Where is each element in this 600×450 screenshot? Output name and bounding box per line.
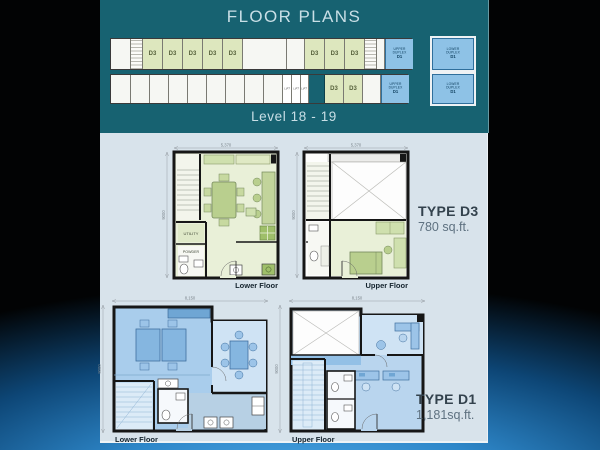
- floor-label: Lower Floor: [115, 435, 158, 444]
- sink-icon: [344, 375, 352, 381]
- dimension-width: 8,150: [289, 296, 425, 303]
- strip-unit-d3: D3: [344, 75, 363, 103]
- plan-d3-upper-floor: 5,370 9000: [292, 142, 412, 290]
- slide-background: FLOOR PLANS D3 D3 D3 D3 D3 D3 D3 D3: [0, 0, 600, 450]
- strip-unit-upper-duplex-d1: UPPERDUPLEXD1: [381, 75, 409, 103]
- strip-unit: [287, 39, 305, 69]
- sink-icon: [179, 256, 188, 262]
- strip-unit: [131, 75, 150, 103]
- strip-unit: [111, 39, 131, 69]
- toilet-icon: [332, 413, 339, 422]
- lift-cell: LIFT: [292, 75, 301, 103]
- slide: FLOOR PLANS D3 D3 D3 D3 D3 D3 D3 D3: [100, 0, 488, 443]
- counter: [168, 309, 210, 318]
- strip-unit-upper-duplex-d1: UPPERDUPLEXD1: [385, 39, 413, 69]
- toilet-icon: [180, 264, 188, 274]
- strip-unit: [245, 75, 264, 103]
- service-core: [243, 39, 287, 69]
- plan-d3-lower-floor: 5,370 9000: [162, 142, 282, 290]
- sink-icon: [344, 405, 352, 411]
- stairs: [116, 383, 153, 430]
- utility-room: UTILITY: [178, 224, 204, 242]
- strip-unit: [150, 75, 169, 103]
- type-d1-title: TYPE D1: [416, 391, 476, 407]
- strip-unit: [226, 75, 245, 103]
- kitchen-counter: [204, 155, 276, 165]
- bed: [350, 252, 382, 274]
- wardrobe: [376, 222, 404, 234]
- dimension-width: 5,370: [304, 143, 408, 150]
- dimension-width: 5,370: [174, 143, 278, 150]
- lift-cell: LIFT: [283, 75, 292, 103]
- toilet-icon: [310, 251, 318, 261]
- sink-icon: [176, 393, 185, 400]
- bathroom: [308, 222, 329, 275]
- dimension-width: 8,150: [112, 296, 268, 303]
- strip-unit: [111, 75, 131, 103]
- strip-unit-lower-duplex-d1: LOWERDUPLEXD1: [432, 74, 474, 104]
- building-notch: [309, 75, 325, 103]
- svg-text:8,150: 8,150: [352, 296, 363, 301]
- dimension-height: 9000: [98, 305, 105, 433]
- svg-text:9000: 9000: [162, 210, 166, 220]
- toilet-icon: [162, 410, 170, 420]
- floor-label: Upper Floor: [366, 281, 409, 290]
- sink-icon: [309, 225, 318, 231]
- strip-unit-d3: D3: [325, 39, 345, 69]
- toilet-icon: [332, 383, 339, 392]
- key-plan-top-wing: D3 D3 D3 D3 D3 D3 D3 D3 UPPERDUPLEXD1: [110, 38, 412, 70]
- type-d3-title: TYPE D3: [418, 203, 478, 219]
- strip-unit-d3: D3: [223, 39, 243, 69]
- key-plan-bottom-wing: LIFT LIFT LIFT D3 D3 UPPERDUPLEXD1: [110, 74, 408, 104]
- building-key-plan: D3 D3 D3 D3 D3 D3 D3 D3 UPPERDUPLEXD1: [100, 36, 488, 108]
- stair-core: [365, 39, 377, 69]
- dimension-height: 9000: [292, 152, 299, 278]
- svg-text:9000: 9000: [275, 364, 279, 374]
- lift-cell: LIFT: [301, 75, 309, 103]
- plan-d1-lower-floor: 8,150 9000: [98, 295, 272, 445]
- type-d3-block: TYPE D3 780 sq.ft.: [418, 203, 478, 234]
- svg-text:5,370: 5,370: [221, 143, 232, 148]
- svg-text:5,370: 5,370: [351, 143, 362, 148]
- strip-unit-d3: D3: [325, 75, 344, 103]
- bathroom: [158, 389, 188, 423]
- plan-d1-upper-floor: 8,150 9000: [275, 295, 431, 445]
- page-title: FLOOR PLANS: [100, 7, 488, 27]
- stair-core: [131, 39, 143, 69]
- stairs: [293, 361, 325, 430]
- type-d1-block: TYPE D1 1,181sq.ft.: [416, 391, 476, 422]
- svg-text:POWDER: POWDER: [183, 250, 200, 254]
- strip-unit-d3: D3: [163, 39, 183, 69]
- type-d1-area: 1,181sq.ft.: [416, 408, 476, 422]
- powder-room: POWDER: [178, 246, 204, 276]
- void-x: [332, 162, 406, 220]
- wall-block: [400, 154, 406, 162]
- strip-unit: [264, 75, 283, 103]
- header-panel: FLOOR PLANS D3 D3 D3 D3 D3 D3 D3 D3: [100, 0, 489, 133]
- svg-text:9000: 9000: [98, 364, 102, 374]
- ledge: [328, 154, 406, 162]
- strip-unit: [377, 39, 385, 69]
- strip-unit-d3: D3: [203, 39, 223, 69]
- strip-unit: [188, 75, 207, 103]
- floor-label: Upper Floor: [292, 435, 335, 444]
- strip-unit-lower-duplex-d1: LOWERDUPLEXD1: [432, 38, 474, 70]
- dimension-height: 9000: [162, 152, 169, 278]
- vanity: [158, 379, 178, 388]
- shower: [321, 246, 329, 266]
- wall-block: [417, 315, 423, 322]
- svg-text:8,150: 8,150: [185, 296, 196, 301]
- strip-unit: [169, 75, 188, 103]
- strip-unit: [363, 75, 381, 103]
- strip-unit-d3: D3: [305, 39, 325, 69]
- floor-label: Lower Floor: [235, 281, 278, 290]
- svg-text:UTILITY: UTILITY: [184, 231, 199, 236]
- washer-icon: [194, 260, 203, 267]
- plans-panel: 5,370 9000: [100, 133, 488, 443]
- strip-unit-d3: D3: [183, 39, 203, 69]
- svg-text:9000: 9000: [292, 210, 296, 220]
- strip-unit: [207, 75, 226, 103]
- dimension-height: 9000: [275, 305, 282, 433]
- level-label: Level 18 - 19: [100, 109, 488, 124]
- strip-unit-d3: D3: [345, 39, 365, 69]
- type-d3-area: 780 sq.ft.: [418, 220, 478, 234]
- void-x: [293, 311, 359, 355]
- strip-unit-d3: D3: [143, 39, 163, 69]
- bathrooms: [327, 371, 355, 429]
